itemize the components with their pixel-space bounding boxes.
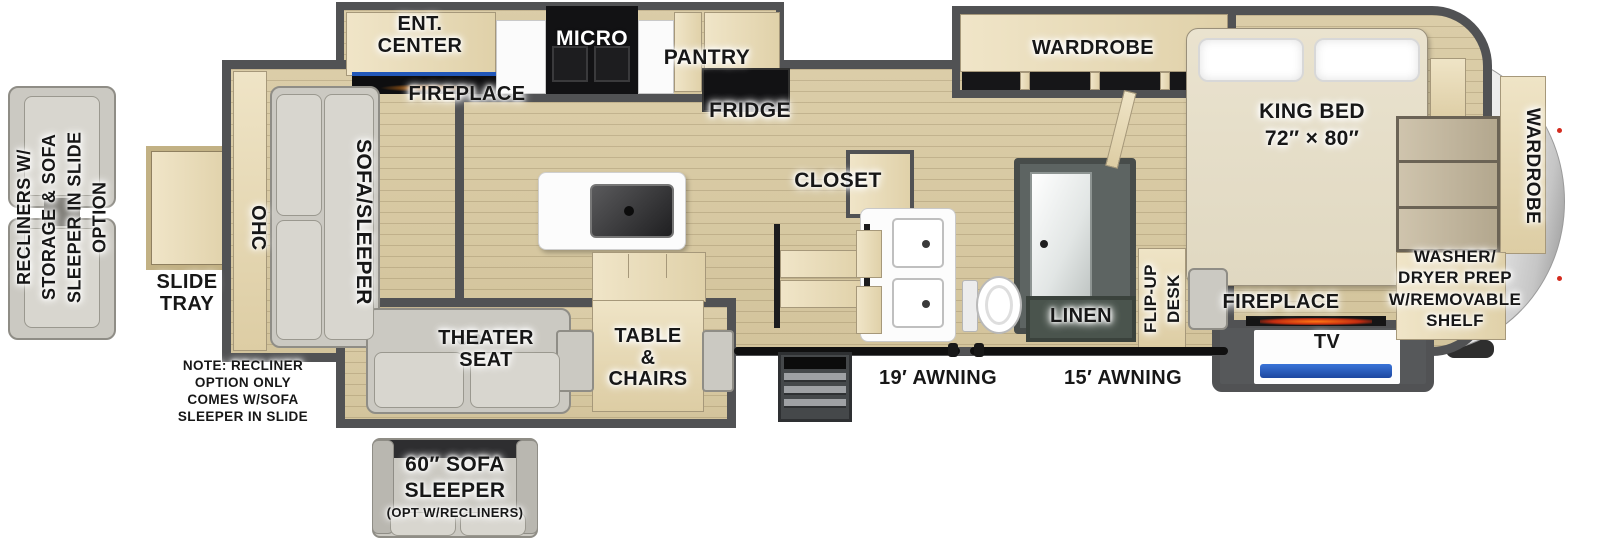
burner — [594, 46, 630, 82]
sofa-option-title: 60″ SOFA SLEEPER — [382, 452, 528, 505]
step-tread — [784, 399, 846, 408]
marker-light — [1557, 128, 1562, 133]
washer-dryer-cabinet — [1396, 116, 1500, 252]
sofa-back-cushion — [276, 220, 322, 340]
vanity-sink — [892, 218, 944, 268]
toilet-seat — [985, 285, 1013, 325]
vanity-door — [856, 286, 882, 334]
dinette-chair — [702, 330, 734, 392]
sofa-sleeper-label: SOFA/SLEEPER — [336, 96, 374, 348]
rod-divider — [1020, 72, 1030, 90]
king-bed-label: KING BED 72″ × 80″ — [1236, 98, 1388, 153]
rod-divider — [1090, 72, 1100, 90]
step-landing — [784, 357, 846, 369]
tv-label: TV — [1262, 332, 1392, 354]
hutch-divider — [628, 254, 629, 278]
linen-label: LINEN — [1032, 306, 1130, 328]
dinette-hutch — [592, 252, 706, 302]
rv-floorplan: RECLINERS W/ STORAGE & SOFA SLEEPER IN S… — [0, 0, 1600, 553]
pantry-label: PANTRY — [648, 47, 766, 70]
ohc-label: OHC — [232, 168, 268, 288]
tv-screen — [1260, 364, 1392, 378]
shower-handle — [1040, 240, 1048, 248]
rod-divider — [1160, 72, 1170, 90]
kitchen-fireplace-label: FIREPLACE — [400, 84, 534, 106]
pillow — [1314, 38, 1420, 82]
pillow — [1198, 38, 1304, 82]
wardrobe-shelf — [780, 280, 864, 308]
hutch-divider — [666, 254, 667, 278]
sofa-option-subtitle: (OPT W/RECLINERS) — [370, 506, 540, 520]
front-wardrobe-label: WARDROBE — [1502, 84, 1542, 248]
slide-tray-label: SLIDE TRAY — [126, 272, 248, 315]
cabinet-shelf-line — [1399, 160, 1497, 163]
nightstand — [1430, 58, 1466, 122]
sink-drain — [922, 300, 930, 308]
vanity-sink — [892, 278, 944, 328]
sofa-back-cushion — [276, 94, 322, 216]
awning-19-label: 19′ AWNING — [862, 368, 1014, 390]
theater-seat-label: THEATER SEAT — [404, 328, 568, 371]
awning-rail — [970, 347, 1228, 355]
step-tread — [784, 386, 846, 395]
step-tread — [784, 373, 846, 382]
wardrobe-slide-label: WARDROBE — [1012, 38, 1174, 60]
marker-light — [1557, 276, 1562, 281]
flip-up-desk-label: FLIP-UP DESK — [1140, 252, 1184, 346]
micro-label: MICRO — [536, 28, 648, 51]
table-chairs-label: TABLE & CHAIRS — [592, 326, 704, 391]
fridge-label: FRIDGE — [702, 100, 798, 123]
burner — [552, 46, 588, 82]
washer-dryer-label: WASHER/ DRYER PREP W/REMOVABLE SHELF — [1364, 246, 1546, 331]
sink-drain — [922, 240, 930, 248]
awning-arm — [948, 343, 958, 357]
wardrobe-post — [774, 224, 780, 328]
island-faucet — [624, 206, 634, 216]
recliners-option-label: RECLINERS W/ STORAGE & SOFA SLEEPER IN S… — [12, 88, 116, 346]
awning-arm — [974, 343, 984, 357]
awning-15-label: 15′ AWNING — [1048, 368, 1198, 390]
closet-label: CLOSET — [778, 170, 898, 193]
recliner-note: NOTE: RECLINER OPTION ONLY COMES W/SOFA … — [162, 358, 324, 426]
bedroom-fireplace-label: FIREPLACE — [1212, 292, 1350, 314]
vanity-door — [856, 230, 882, 278]
cabinet-shelf-line — [1399, 206, 1497, 209]
wardrobe-shelf — [780, 250, 864, 278]
ent-center-label: ENT. CENTER — [358, 14, 482, 57]
bedroom-fireplace-glow — [1260, 318, 1372, 325]
